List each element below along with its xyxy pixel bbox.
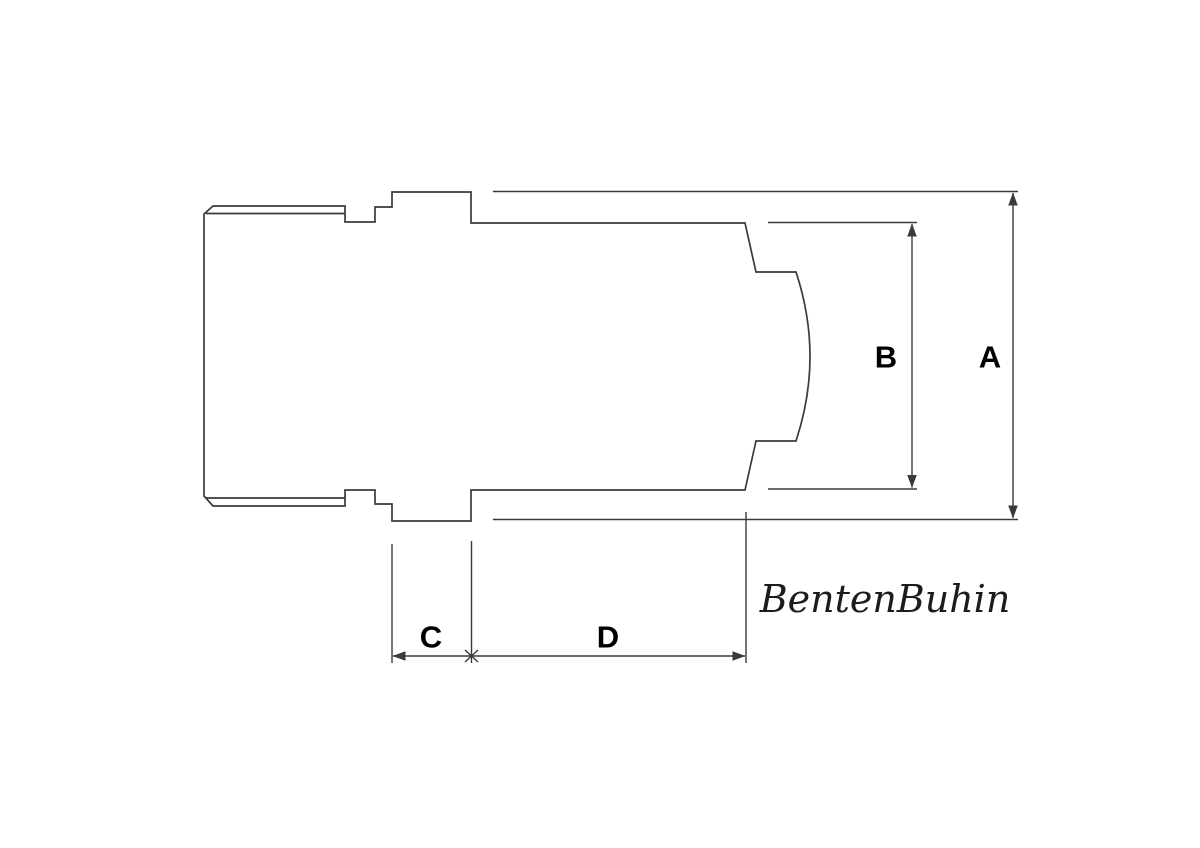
drawing-canvas: A B C D BentenBuhin	[0, 0, 1200, 848]
technical-drawing: A B C D BentenBuhin	[0, 0, 1200, 848]
dimension-c: C	[392, 541, 478, 663]
dimension-d-label: D	[597, 620, 619, 655]
brand-signature: BentenBuhin	[759, 577, 1011, 621]
dimension-c-label: C	[420, 620, 442, 655]
part-outline-path	[204, 192, 810, 521]
dimension-a: A	[493, 192, 1018, 520]
dimension-d: D	[472, 512, 747, 663]
dimension-b-label: B	[875, 340, 897, 375]
dimension-b: B	[768, 223, 917, 490]
dimension-a-label: A	[979, 340, 1001, 375]
part-profile	[204, 192, 810, 521]
